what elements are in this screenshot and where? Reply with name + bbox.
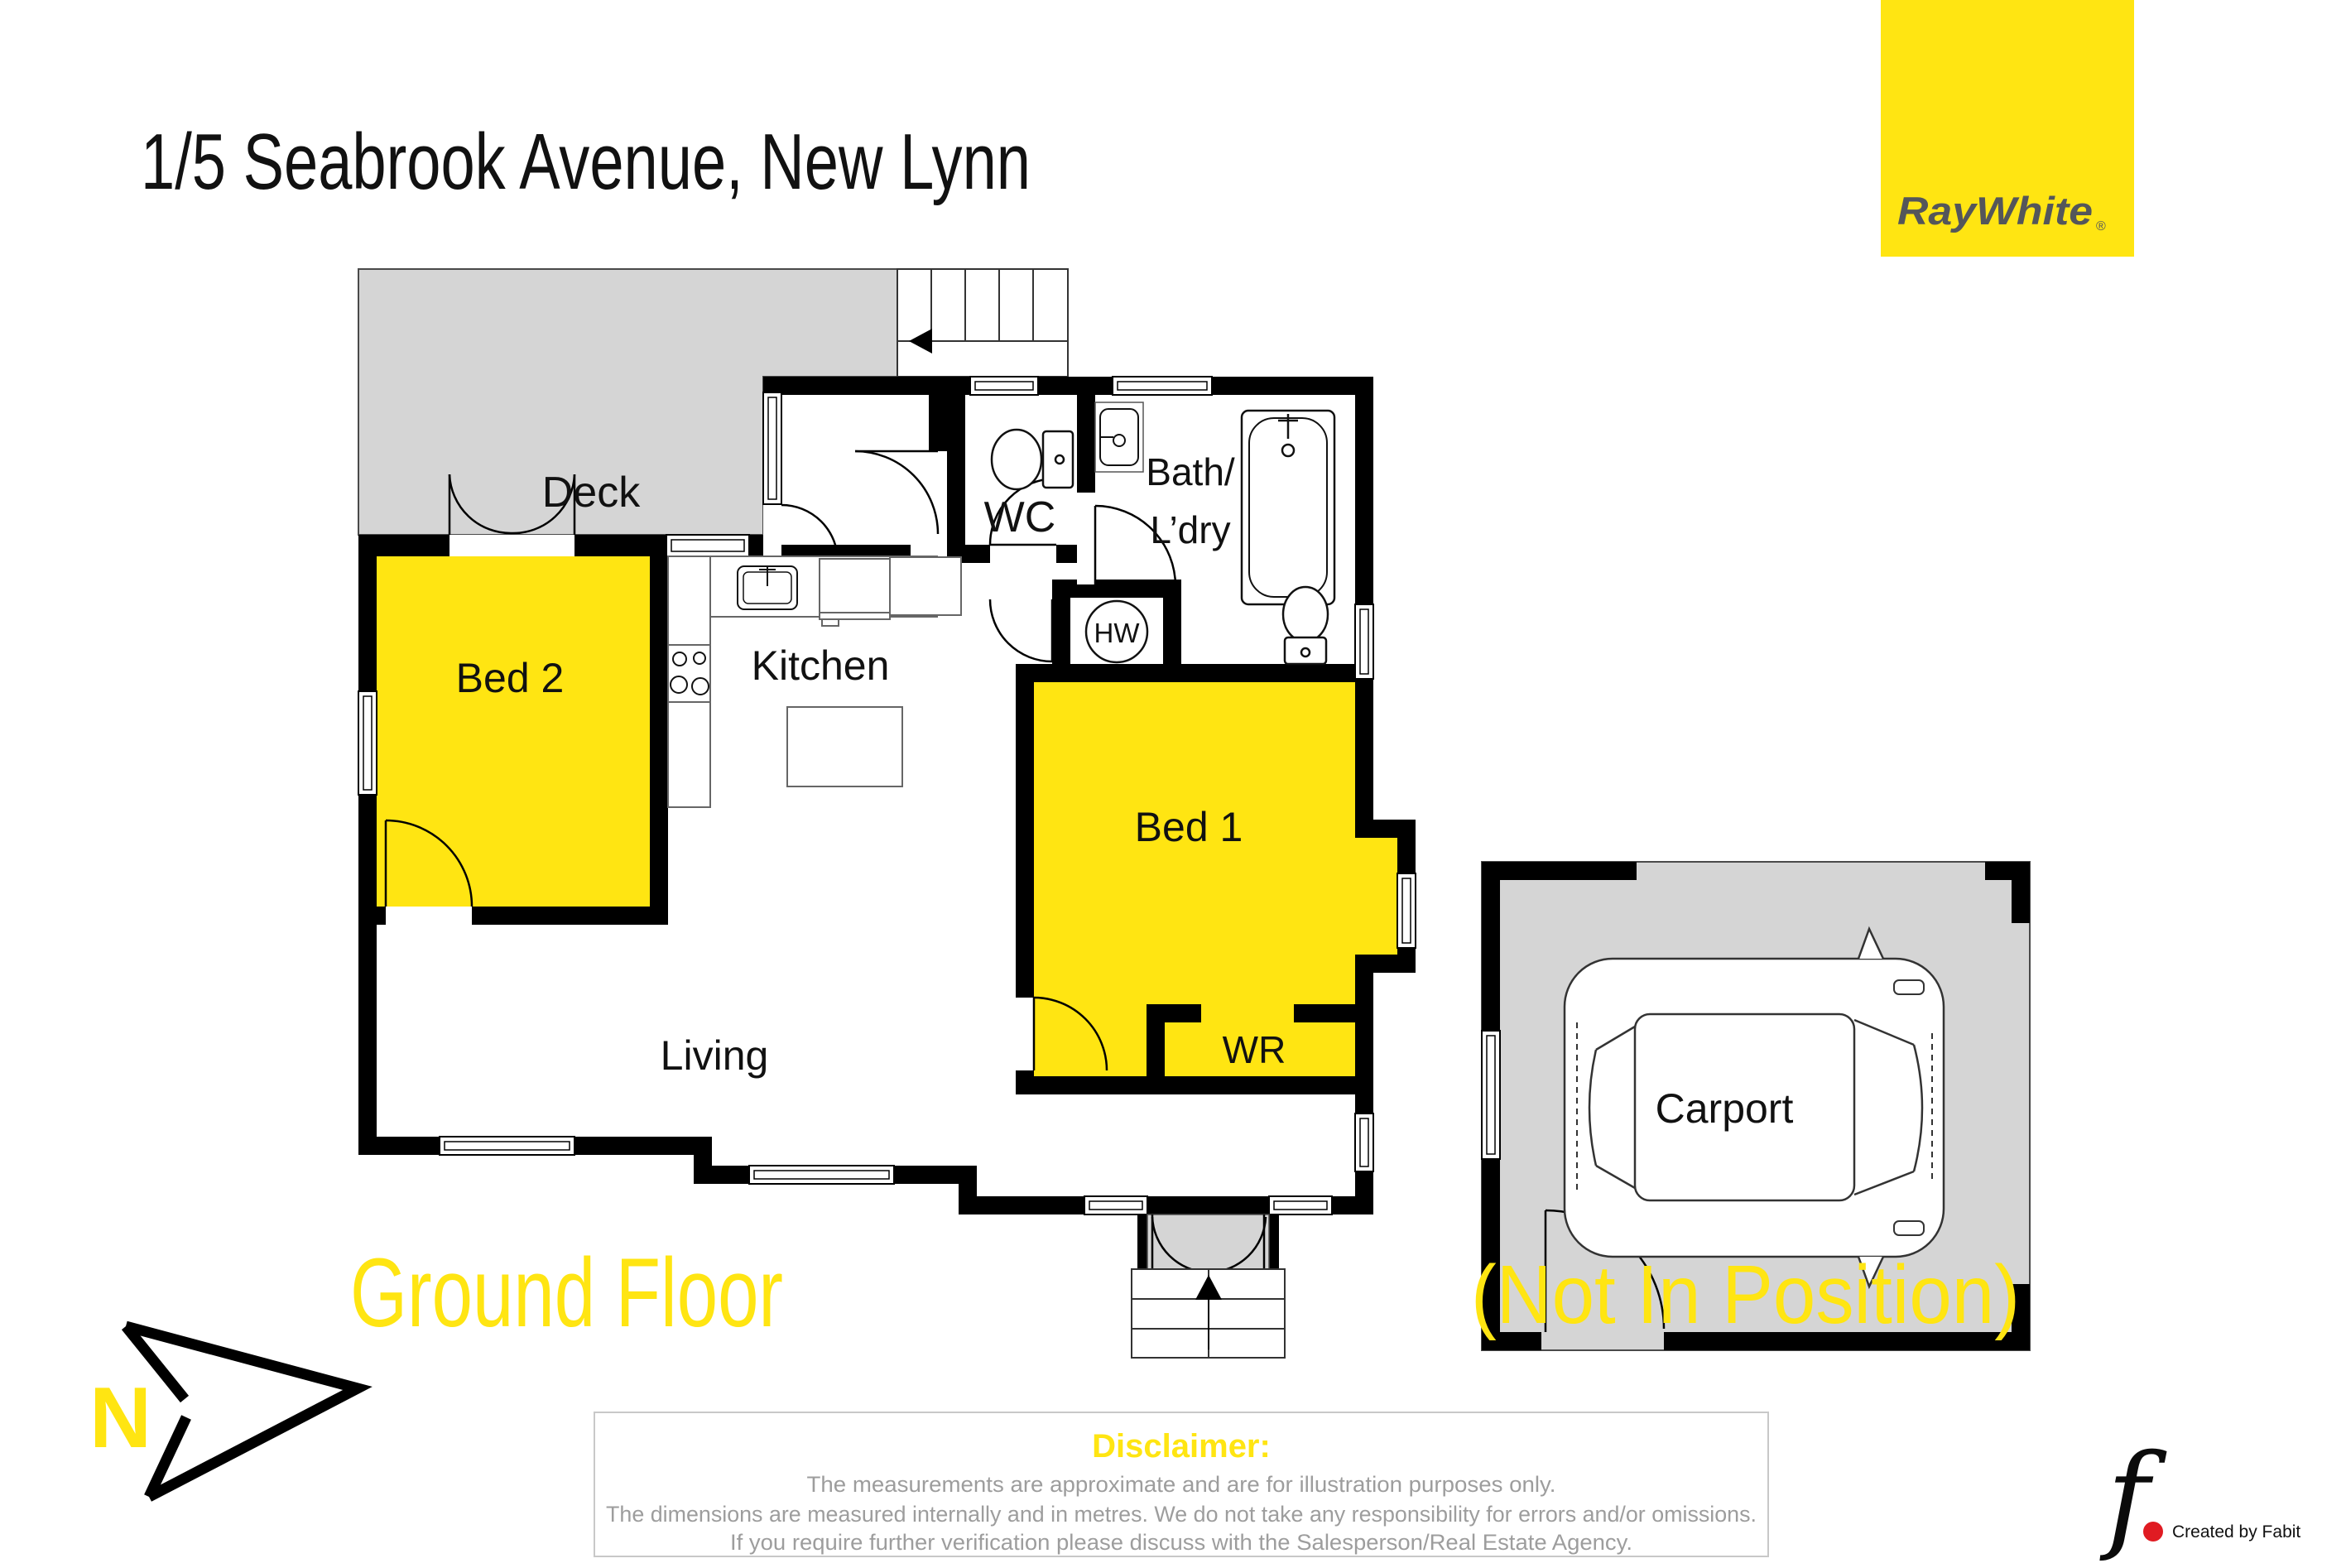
- deck-stairs: [897, 269, 1068, 377]
- room-label-bath-1: Bath/: [1146, 450, 1235, 493]
- kitchen-sink-icon: [738, 566, 797, 609]
- fabit-credit-text: Created by Fabit: [2172, 1522, 2300, 1542]
- page-title: 1/5 Seabrook Avenue, New Lynn: [141, 118, 1031, 206]
- room-label-wc: WC: [984, 493, 1056, 541]
- kitchen-island: [787, 707, 902, 786]
- fabit-credit: f Created by Fabit: [2099, 1430, 2300, 1565]
- window-bath-top: [1113, 377, 1212, 395]
- window-porch-right: [1269, 1196, 1332, 1214]
- room-label-kitchen: Kitchen: [752, 642, 890, 689]
- room-label-deck: Deck: [542, 469, 641, 517]
- porch-floor: [1147, 1214, 1269, 1269]
- window-porch-left: [1084, 1196, 1147, 1214]
- window-kitchen-deck: [666, 535, 749, 556]
- room-label-bath-2: L’dry: [1150, 508, 1230, 551]
- bath-toilet-icon: [1283, 587, 1328, 664]
- wc-toilet-icon: [992, 430, 1073, 489]
- raywhite-registered-mark: ®: [2096, 219, 2106, 233]
- room-label-bed2: Bed 2: [456, 655, 565, 701]
- raywhite-logo-text: RayWhite: [1897, 189, 2093, 233]
- floorplan: Deck Bed 2 Kitchen Living WC Bath/ L’dry…: [358, 269, 2030, 1358]
- fabit-f-icon: f: [2099, 1430, 2167, 1565]
- window-bed2-left: [358, 691, 377, 795]
- disclaimer-title: Disclaimer:: [1092, 1428, 1271, 1465]
- north-compass: N: [89, 1326, 358, 1497]
- bed2-floor: [377, 556, 650, 907]
- disclaimer-line-3: If you require further verification plea…: [730, 1530, 1632, 1555]
- north-arrow-icon: [126, 1326, 358, 1497]
- window-living-mid-bottom: [749, 1166, 894, 1184]
- room-label-living: Living: [661, 1032, 769, 1079]
- window-living-left-bottom: [440, 1137, 574, 1155]
- window-entry-left: [763, 392, 781, 504]
- room-label-hw: HW: [1094, 618, 1141, 648]
- fabit-red-dot-icon: [2143, 1522, 2163, 1542]
- room-label-wr: WR: [1223, 1028, 1286, 1071]
- disclaimer-line-1: The measurements are approximate and are…: [807, 1472, 1556, 1497]
- window-bath-right: [1355, 604, 1373, 679]
- floor-label: Ground Floor: [350, 1239, 783, 1348]
- window-bed1-bay: [1397, 873, 1416, 948]
- raywhite-logo: RayWhite ®: [1881, 0, 2134, 257]
- entry-steps: [1132, 1269, 1285, 1358]
- bathtub-icon: [1242, 411, 1334, 604]
- room-label-bed1: Bed 1: [1135, 804, 1243, 850]
- bath-sink-icon: [1095, 402, 1143, 472]
- bed1-bay-floor: [1355, 838, 1397, 955]
- carport-note-label: (Not In Position): [1471, 1248, 2020, 1341]
- window-right-lower: [1355, 1113, 1373, 1171]
- disclaimer-line-2: The dimensions are measured internally a…: [606, 1502, 1757, 1527]
- window-carport-left: [1482, 1031, 1500, 1159]
- window-wc-top: [970, 377, 1038, 395]
- disclaimer-box: Disclaimer: The measurements are approxi…: [594, 1412, 1768, 1556]
- stove-icon: [668, 645, 710, 702]
- north-label: N: [89, 1370, 151, 1466]
- room-label-carport: Carport: [1656, 1085, 1794, 1132]
